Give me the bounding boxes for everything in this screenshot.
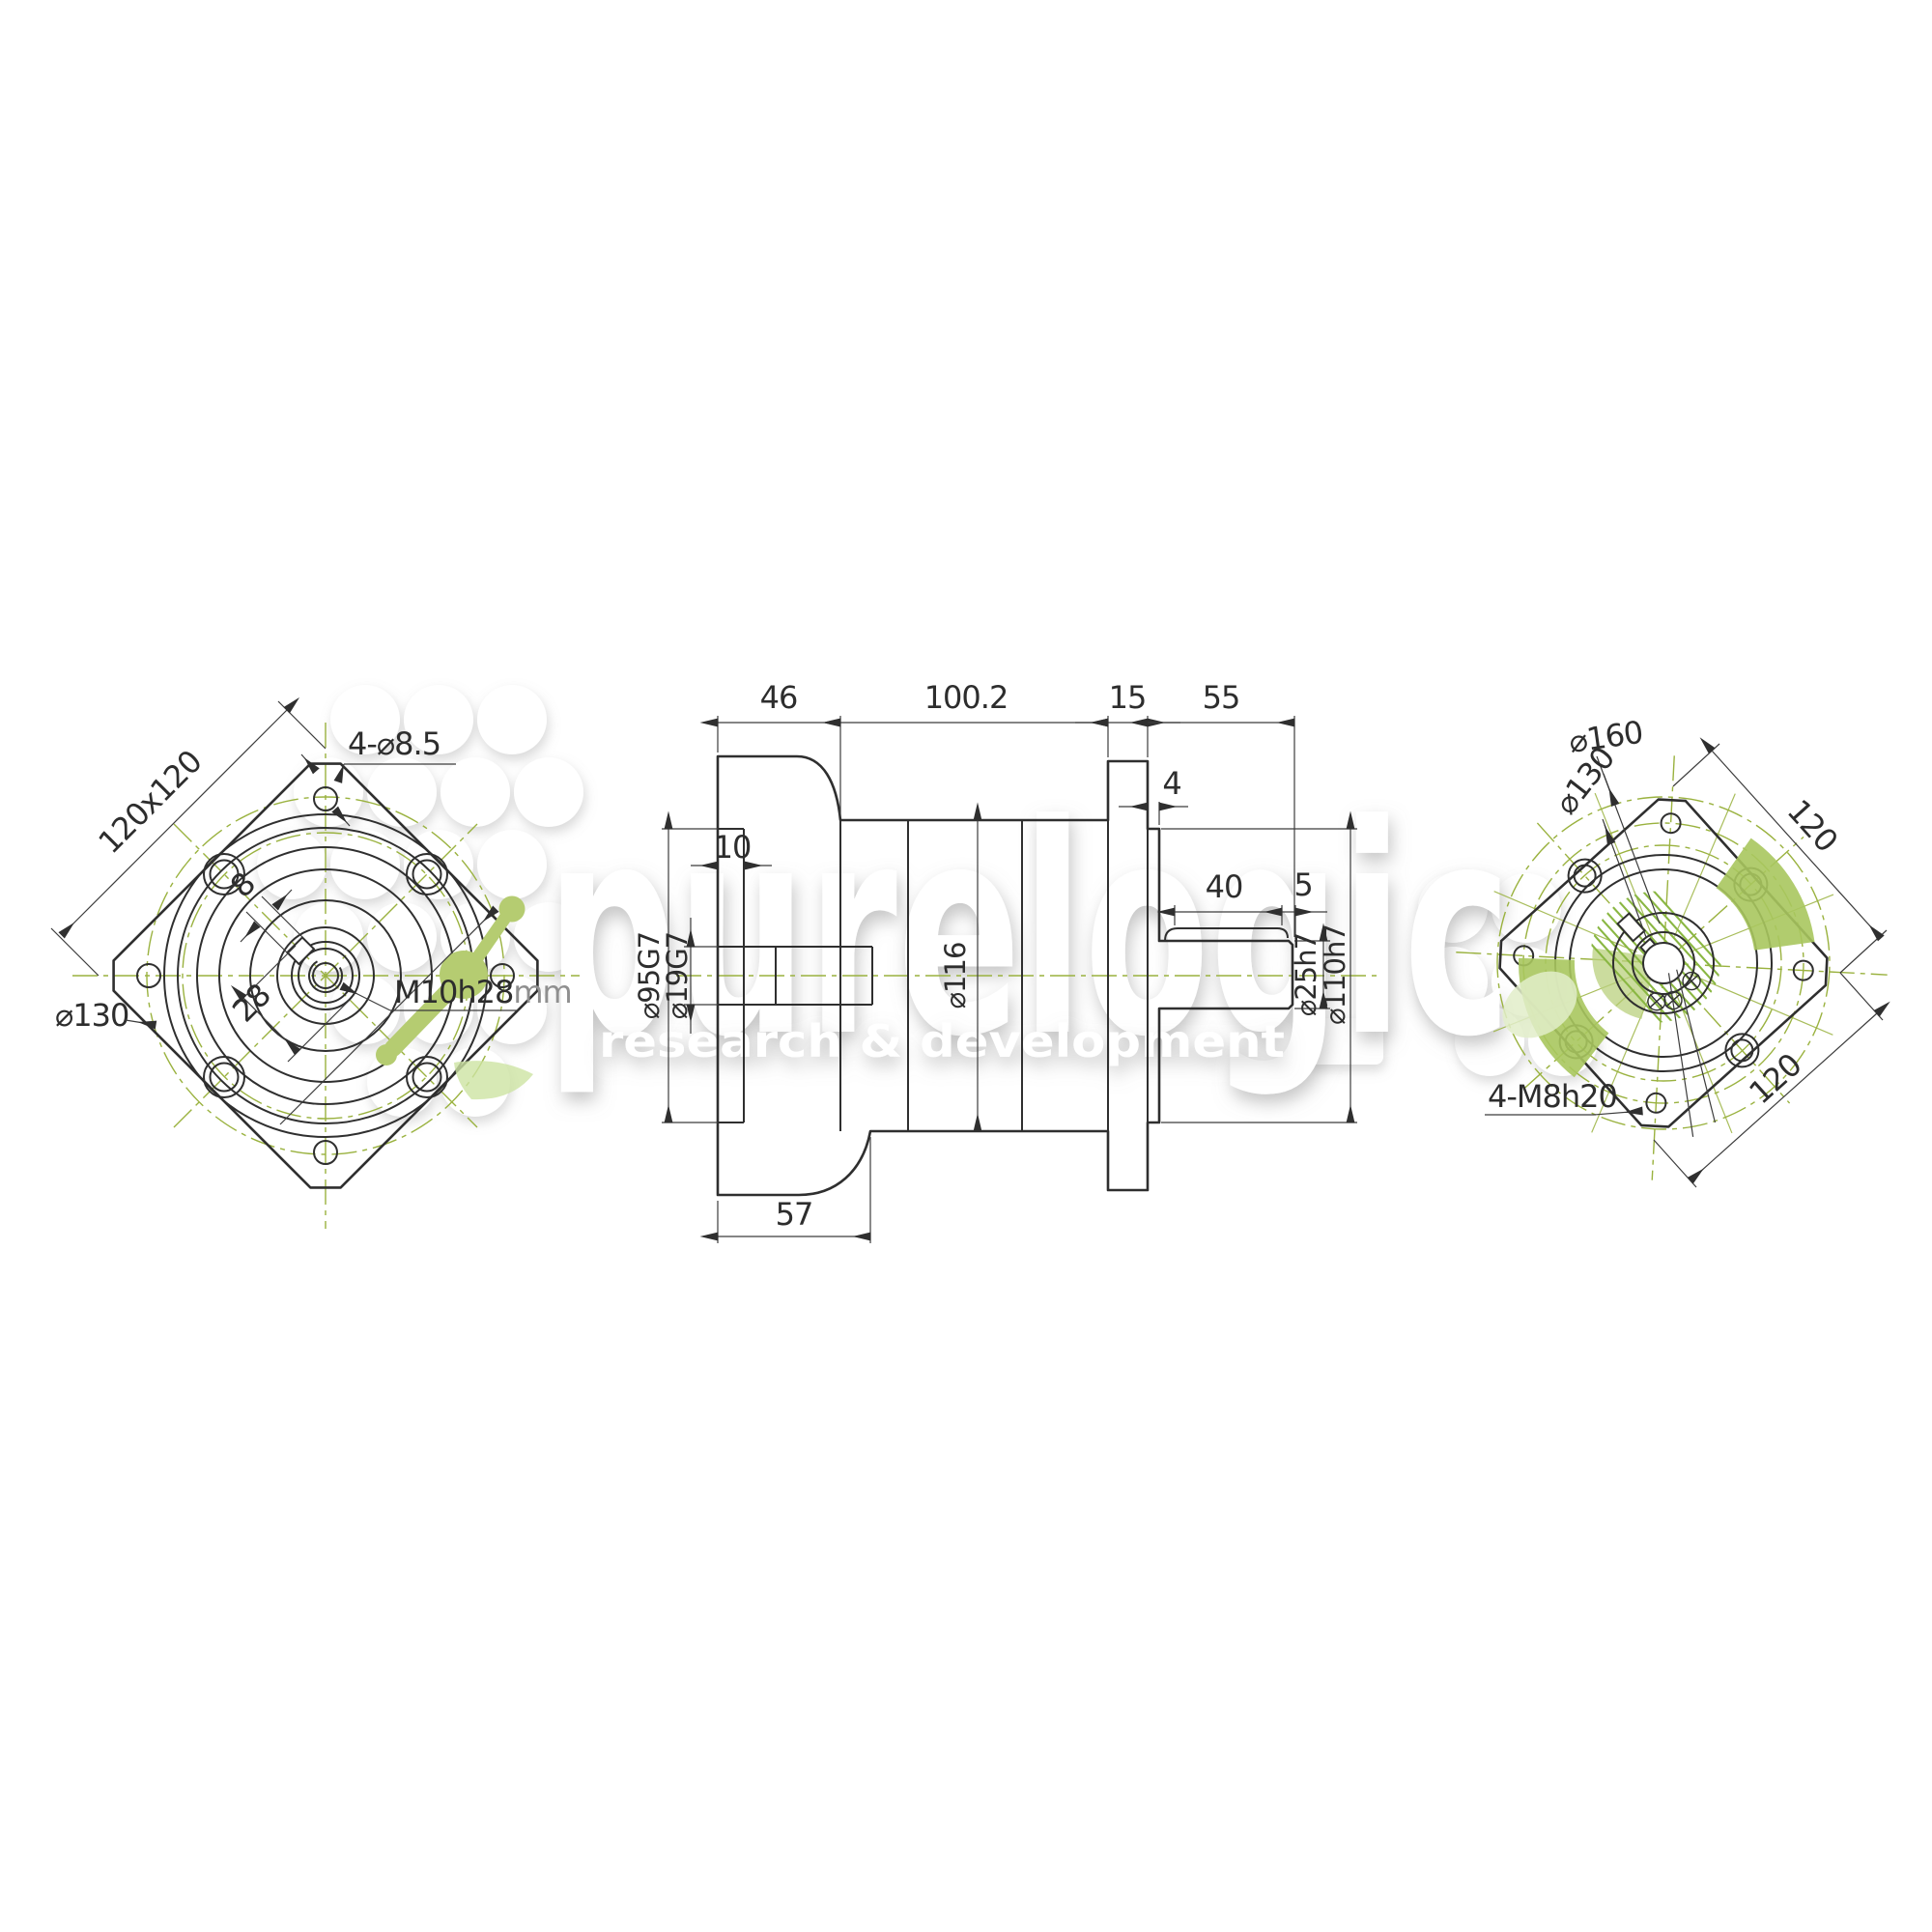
side-dim-15: 15 (1109, 679, 1147, 716)
watermark-tagline-text: research & development (599, 1015, 1285, 1067)
side-dim-d19g7: ⌀19G7 (661, 932, 694, 1019)
logo-dot-tiny (376, 1044, 397, 1065)
side-dim-57: 57 (776, 1196, 813, 1233)
side-dim-100-2: 100.2 (924, 679, 1009, 716)
side-dim-40: 40 (1206, 868, 1243, 905)
front-key-width-label: 8 (223, 866, 263, 905)
side-dim-4: 4 (1162, 765, 1180, 802)
side-dim-d110h7: ⌀110h7 (1319, 924, 1351, 1025)
front-bolt-circle-label: ⌀130 (55, 997, 128, 1034)
side-dim-10: 10 (714, 829, 752, 866)
front-center-tap-value: M10h28 (394, 974, 513, 1010)
front-center-tap-unit: mm (513, 974, 571, 1010)
side-dim-55: 55 (1203, 679, 1240, 716)
front-key-span-label: 28 (225, 977, 277, 1029)
rear-dim-120-top: 120 (1780, 792, 1845, 859)
side-dim-d116: ⌀116 (939, 943, 972, 1009)
side-dim-d25h7: ⌀25h7 (1290, 933, 1322, 1016)
front-corner-holes-label: 4-⌀8.5 (348, 725, 440, 762)
technical-drawing-canvas: purelogic research & development (0, 0, 1932, 1932)
rear-corner-taps-label: 4-M8h20 (1488, 1078, 1617, 1115)
logo-leaf-ne (1717, 838, 1815, 951)
side-dim-5: 5 (1293, 867, 1312, 903)
front-square-dim-label: 120x120 (91, 743, 209, 861)
side-dim-46: 46 (760, 679, 798, 716)
watermark: purelogic research & development (257, 685, 1598, 1117)
front-center-tap-label: M10h28mm (394, 974, 572, 1010)
